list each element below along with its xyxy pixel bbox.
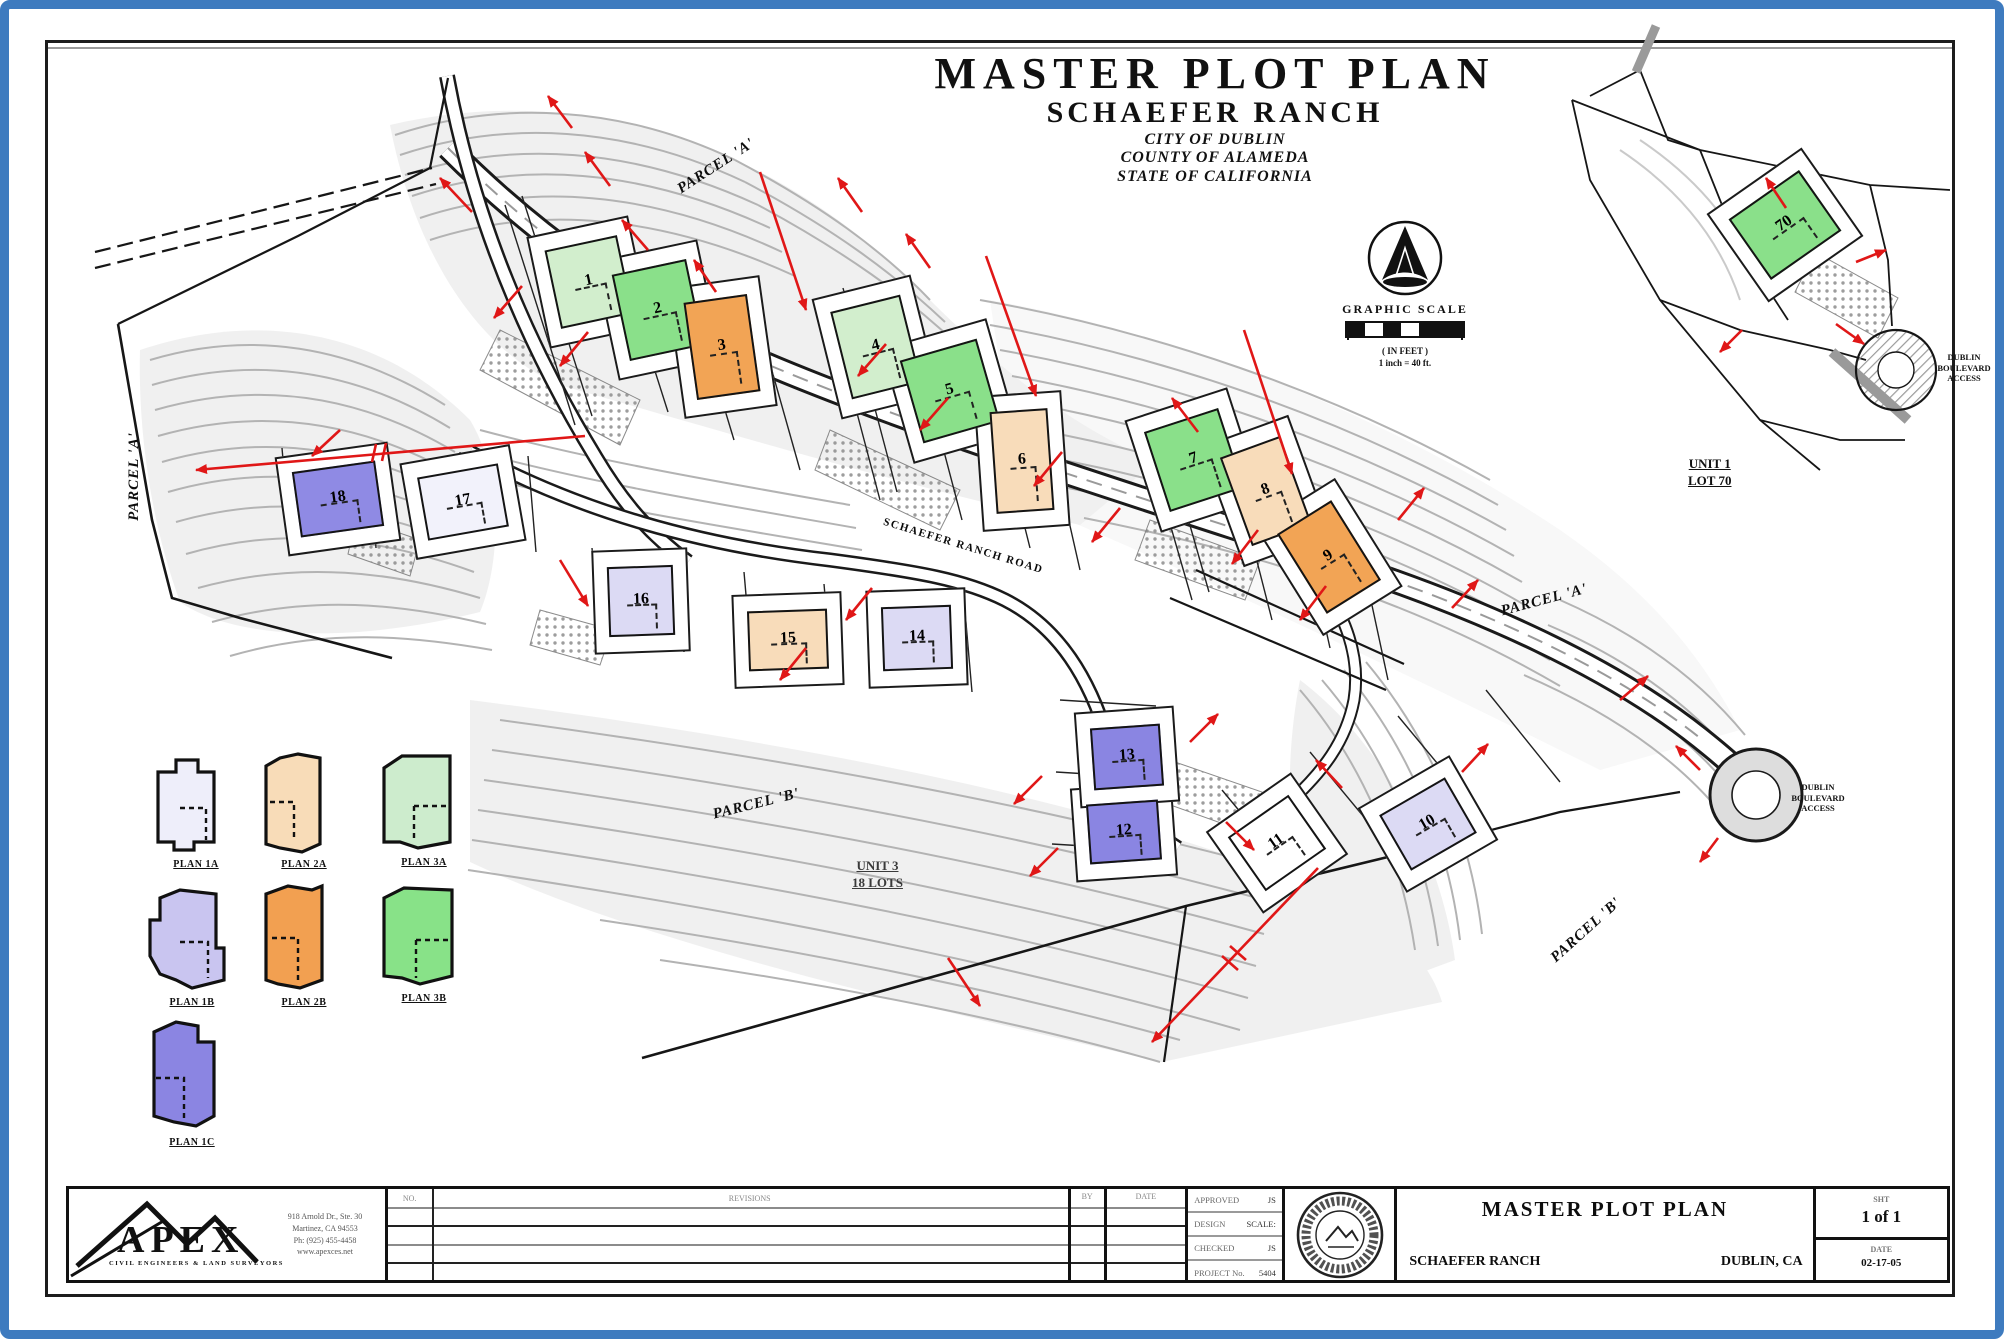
lot-14: 14 — [881, 605, 953, 671]
culdesac-label-line2: BOULEVARD — [1788, 793, 1848, 804]
page-subtitle: SCHAEFER RANCH — [915, 96, 1515, 131]
scale-units: ( IN FEET ) — [1330, 346, 1480, 358]
legend-label: PLAN 2B — [258, 997, 350, 1008]
approval-value: JS — [1268, 1243, 1276, 1253]
north-and-scale: GRAPHIC SCALE ( IN FEET ) 1 inch = 40 ft… — [1330, 218, 1480, 369]
lot-footprint-detail — [1109, 833, 1142, 856]
unit-note-line2: 18 LOTS — [852, 875, 903, 892]
revision-table: NO. REVISIONS — [388, 1189, 1071, 1280]
lot-footprint-detail — [710, 350, 743, 388]
approval-label: PROJECT No. — [1194, 1268, 1244, 1278]
page-title: MASTER PLOT PLAN — [915, 52, 1515, 96]
unit-note: UNIT 3 18 LOTS — [852, 858, 903, 892]
approval-label: CHECKED — [1194, 1243, 1234, 1253]
parcel-label-west: PARCEL 'A' — [126, 432, 143, 521]
culdesac-label-line1: DUBLIN — [1788, 782, 1848, 793]
lot-footprint-detail — [771, 642, 807, 664]
inset-unit-note: UNIT 1 LOT 70 — [1688, 456, 1731, 490]
apex-addr-line: www.apexces.net — [269, 1246, 381, 1258]
lot-footprint-detail — [903, 640, 935, 663]
header-county: COUNTY OF ALAMEDA — [915, 149, 1515, 168]
legend-label: PLAN 1C — [146, 1137, 238, 1148]
lot-3: 3 — [683, 294, 760, 400]
legend-item-plan1b: PLAN 1B — [146, 882, 238, 1008]
lot-footprint-detail — [447, 501, 487, 529]
legend-item-plan1a: PLAN 1A — [150, 752, 242, 870]
lot-footprint-detail — [1011, 466, 1039, 503]
inset-culdesac-label: DUBLIN BOULEVARD ACCESS — [1935, 352, 1993, 384]
approval-label: DESIGN — [1194, 1219, 1225, 1229]
sht-label: SHT — [1816, 1195, 1947, 1204]
apex-addr-line: 918 Arnold Dr., Ste. 30 — [269, 1211, 381, 1223]
apex-addr-line: Martinez, CA 94553 — [269, 1223, 381, 1235]
revision-no-header: NO. — [388, 1194, 432, 1203]
inset-label-line3: ACCESS — [1935, 373, 1993, 384]
lot-15: 15 — [747, 609, 829, 672]
title-block: APEX CIVIL ENGINEERS & LAND SURVEYORS 91… — [66, 1186, 1950, 1283]
title-block-firm: APEX CIVIL ENGINEERS & LAND SURVEYORS 91… — [69, 1189, 388, 1280]
date-label: DATE — [1816, 1245, 1947, 1254]
lot-footprint-detail — [643, 311, 682, 348]
legend-label: PLAN 1A — [150, 859, 242, 870]
lot-footprint-detail — [575, 282, 613, 316]
lot-12: 12 — [1086, 800, 1162, 865]
lot-footprint-detail — [321, 499, 361, 527]
apex-logo: APEX CIVIL ENGINEERS & LAND SURVEYORS — [69, 1192, 269, 1278]
sheet-header: MASTER PLOT PLAN SCHAEFER RANCH CITY OF … — [915, 52, 1515, 187]
inset-label-line2: BOULEVARD — [1935, 363, 1993, 374]
legend-item-plan3a: PLAN 3A — [378, 750, 470, 868]
approvals-box: APPROVEDJS DESIGNSCALE: CHECKEDJS PROJEC… — [1188, 1189, 1285, 1280]
legend-label: PLAN 3B — [378, 993, 470, 1004]
titleblock-project: SCHAEFER RANCH — [1409, 1254, 1540, 1270]
titleblock-location: DUBLIN, CA — [1721, 1254, 1803, 1270]
approval-value: JS — [1268, 1195, 1276, 1205]
date-value: 02-17-05 — [1816, 1257, 1947, 1269]
culdesac-label: DUBLIN BOULEVARD ACCESS — [1788, 782, 1848, 814]
lot-13: 13 — [1090, 724, 1164, 791]
revision-by-column: BY — [1071, 1189, 1107, 1280]
lot-footprint-detail — [1113, 758, 1145, 782]
revision-revisions-header: REVISIONS — [432, 1194, 1068, 1203]
revision-date-column: DATE — [1107, 1189, 1189, 1280]
lot-footprint-detail — [627, 604, 657, 629]
engineer-seal — [1285, 1189, 1398, 1280]
legend-label: PLAN 3A — [378, 857, 470, 868]
plan-linework — [0, 0, 2004, 1339]
inset-unit-line2: LOT 70 — [1688, 473, 1731, 490]
inset-label-line1: DUBLIN — [1935, 352, 1993, 363]
legend-label: PLAN 1B — [146, 997, 238, 1008]
legend-item-plan2a: PLAN 2A — [258, 748, 350, 870]
sht-value: 1 of 1 — [1816, 1207, 1947, 1227]
scale-bar — [1345, 321, 1465, 338]
approval-label: APPROVED — [1194, 1195, 1239, 1205]
inset-unit-line1: UNIT 1 — [1688, 456, 1731, 473]
lot-18: 18 — [292, 460, 384, 537]
culdesac-label-line3: ACCESS — [1788, 803, 1848, 814]
master-plot-plan-sheet: { "header": { "title": "MASTER PLOT PLAN… — [0, 0, 2004, 1339]
apex-addr-line: Ph: (925) 455-4458 — [269, 1235, 381, 1247]
approval-value: SCALE: — [1247, 1219, 1276, 1229]
lot-6: 6 — [990, 408, 1055, 514]
apex-address: 918 Arnold Dr., Ste. 30 Martinez, CA 945… — [269, 1211, 381, 1257]
legend-item-plan2b: PLAN 2B — [258, 880, 350, 1008]
by-header: BY — [1071, 1192, 1104, 1201]
titleblock-main-title: MASTER PLOT PLAN — [1397, 1197, 1812, 1222]
legend-item-plan3b: PLAN 3B — [378, 882, 470, 1004]
title-block-titles: MASTER PLOT PLAN SCHAEFER RANCH DUBLIN, … — [1397, 1189, 1815, 1280]
date-header: DATE — [1107, 1192, 1186, 1201]
lot-footprint-detail — [863, 348, 902, 386]
sheet-number-box: SHT 1 of 1 DATE 02-17-05 — [1816, 1189, 1947, 1280]
unit-note-line1: UNIT 3 — [852, 858, 903, 875]
graphic-scale-label: GRAPHIC SCALE — [1330, 302, 1480, 317]
lot-16: 16 — [607, 565, 675, 637]
header-city: CITY OF DUBLIN — [915, 131, 1515, 150]
approval-value: 5404 — [1259, 1268, 1276, 1278]
north-arrow-icon — [1330, 218, 1480, 298]
legend-label: PLAN 2A — [258, 859, 350, 870]
apex-name: APEX — [117, 1218, 244, 1262]
header-state: STATE OF CALIFORNIA — [915, 168, 1515, 187]
scale-ratio: 1 inch = 40 ft. — [1330, 358, 1480, 370]
apex-tagline: CIVIL ENGINEERS & LAND SURVEYORS — [109, 1260, 284, 1267]
legend-item-plan1c: PLAN 1C — [146, 1016, 238, 1148]
